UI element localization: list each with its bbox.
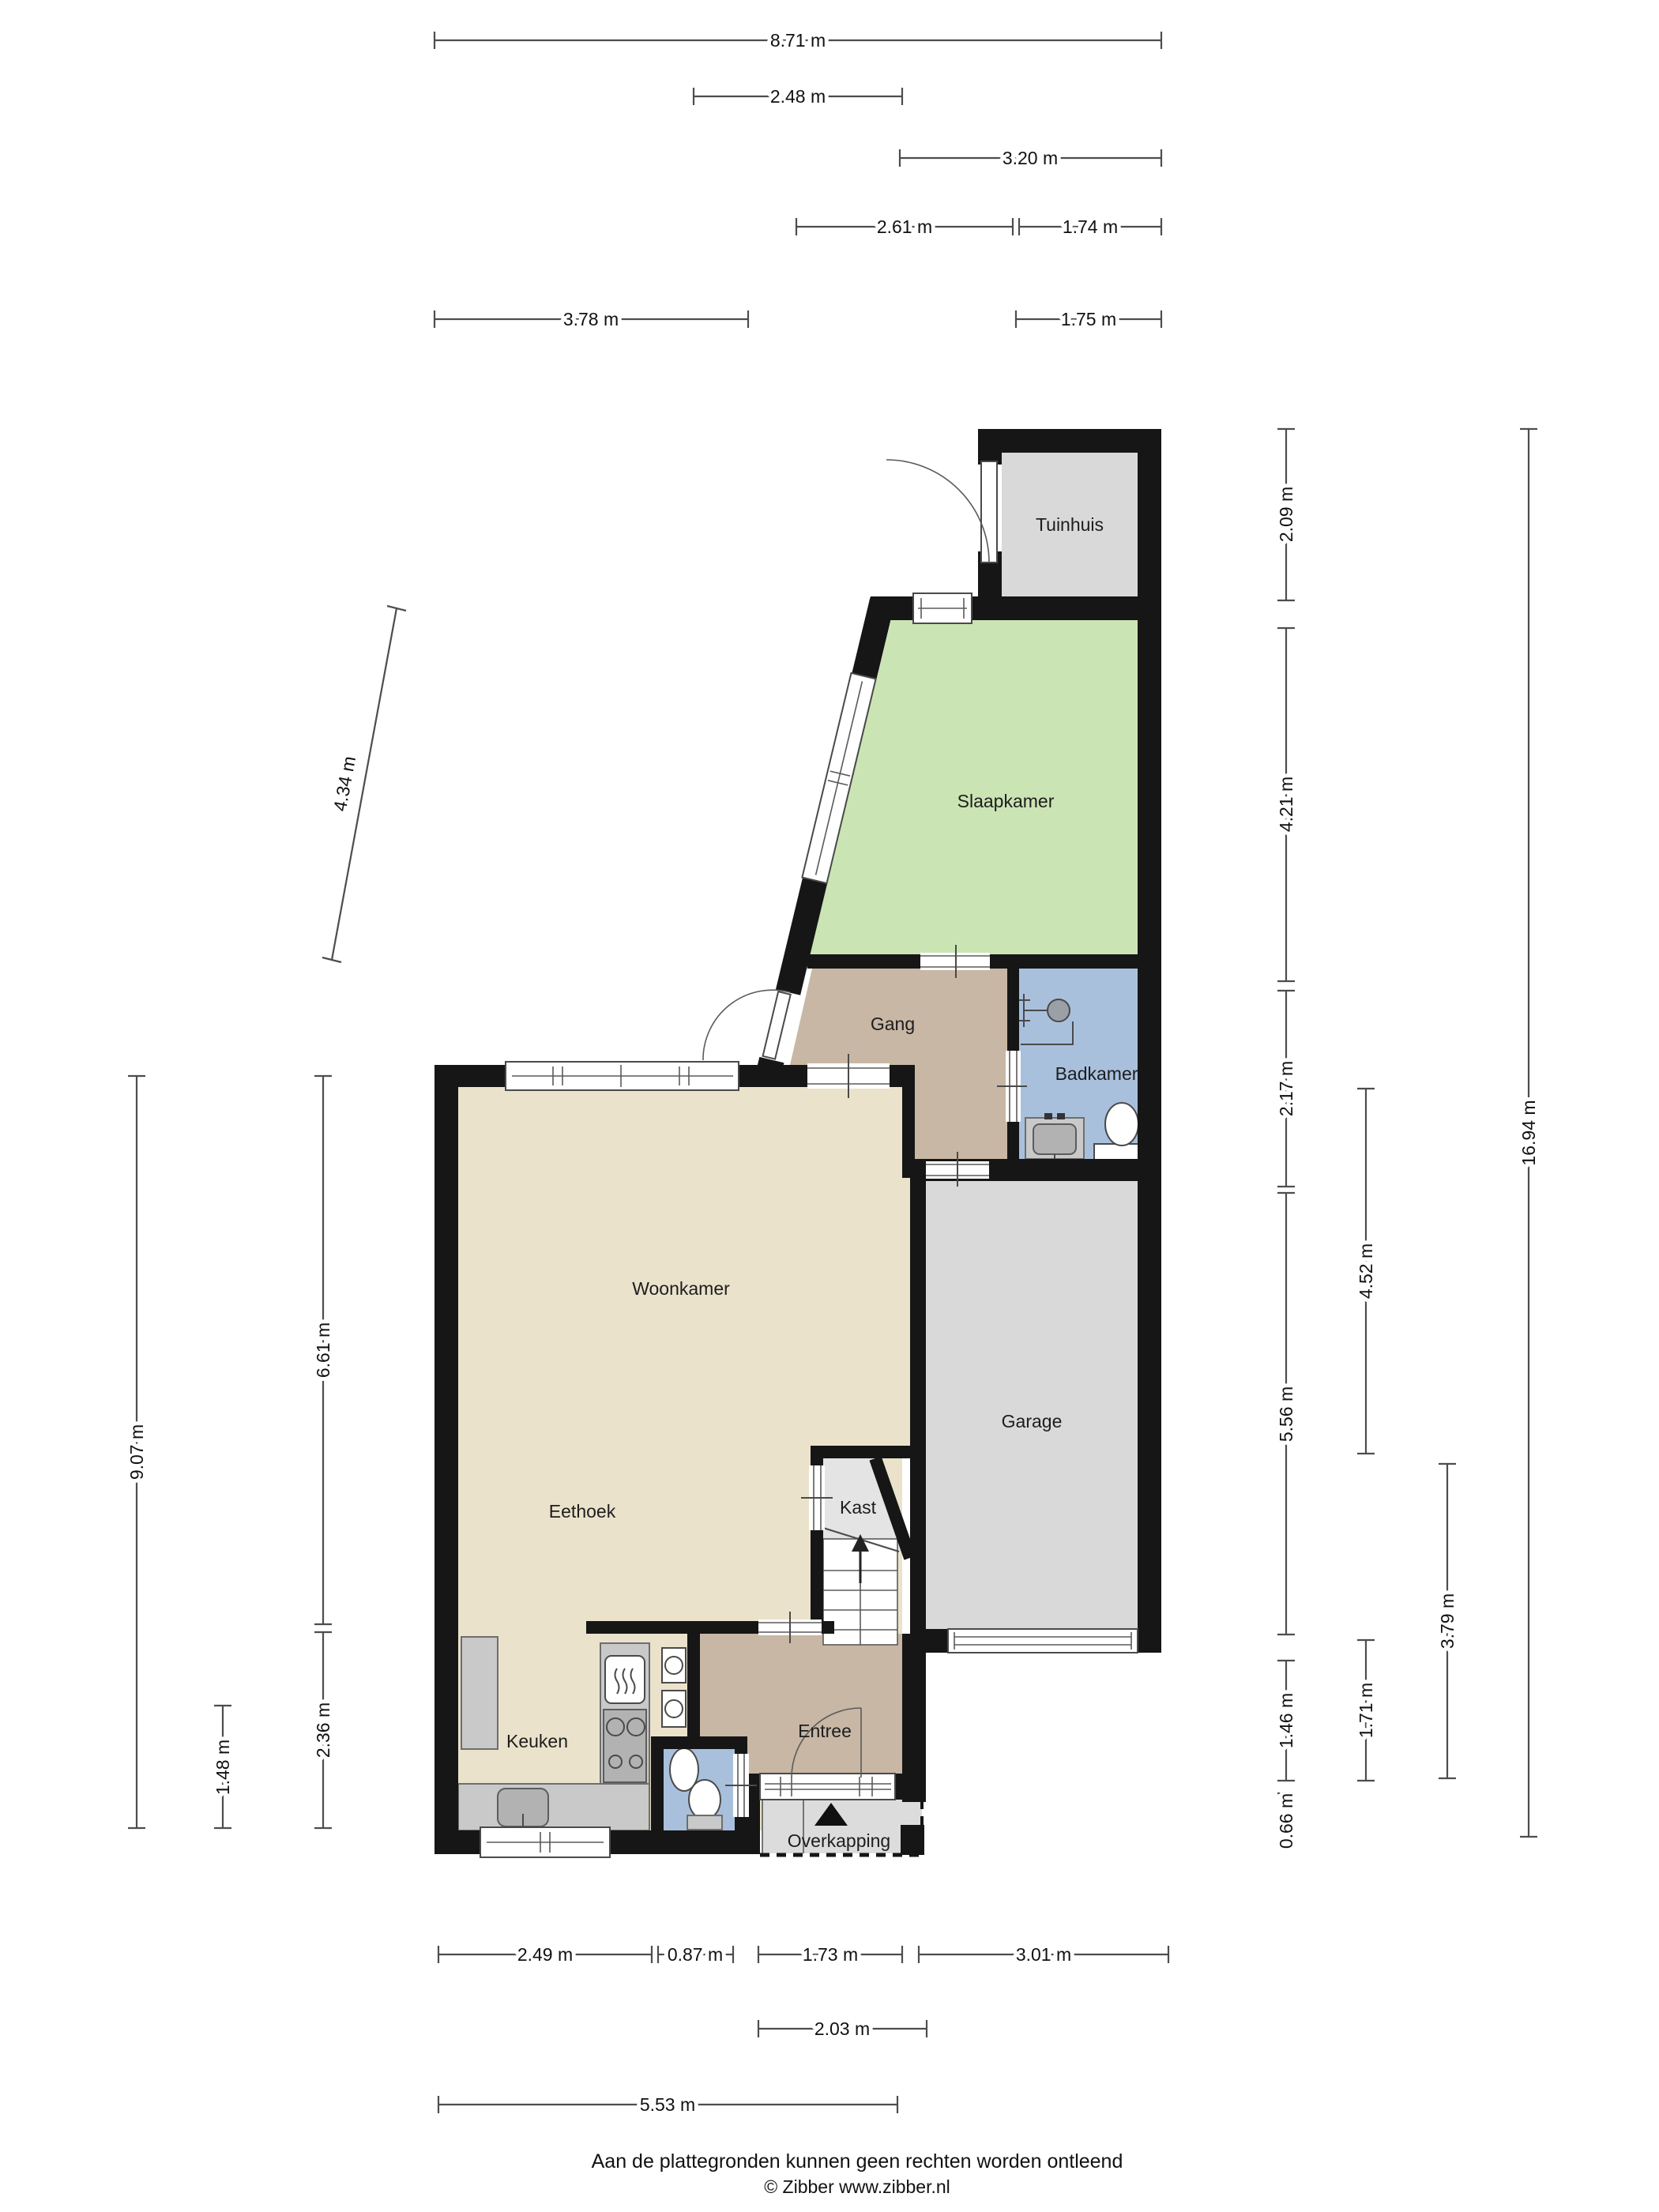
svg-text:2.48 m: 2.48 m [770,86,826,107]
svg-text:1.71 m: 1.71 m [1356,1683,1376,1738]
label-slaapkamer: Slaapkamer [957,791,1055,811]
dim-right-3: 5.56 m [1276,1193,1296,1635]
dim-bottom-1: 0.87 m [658,1944,733,1965]
dim-left-1: 6.61 m [313,1076,333,1624]
dim-bottom-4: 2.03 m [758,2018,927,2039]
dim-right-0: 2.09 m [1276,429,1296,600]
label-kast: Kast [840,1497,877,1518]
svg-text:1.75 m: 1.75 m [1061,309,1116,329]
window-slaapkamer-top [913,593,972,623]
label-woonkamer: Woonkamer [632,1278,730,1299]
svg-text:2.03 m: 2.03 m [814,2018,870,2039]
basin-tap-icon [1044,1113,1052,1119]
toilet-bowl-icon [1105,1103,1138,1145]
tuinhuis-door-leaf [981,461,997,562]
svg-text:5.56 m: 5.56 m [1276,1386,1296,1442]
floorplan-drawing: 8.71 m 2.48 m 3.20 m 2.61 m 1.74 m 3.78 … [0,0,1659,2212]
svg-text:1.73 m: 1.73 m [803,1944,858,1965]
dim-top-6: 1.75 m [1016,309,1161,329]
dim-top-0: 8.71 m [434,30,1161,51]
svg-text:2.36 m: 2.36 m [313,1702,333,1758]
dim-bottom-0: 2.49 m [438,1944,652,1965]
label-garage: Garage [1002,1411,1063,1431]
label-entree: Entree [798,1721,852,1741]
dim-bottom-3: 3.01 m [919,1944,1168,1965]
kitchen-cabinet [461,1637,498,1749]
dim-right-1: 4.21 m [1276,628,1296,981]
footer-disclaimer: Aan de plattegronden kunnen geen rechten… [592,2150,1123,2172]
svg-text:9.07 m: 9.07 m [126,1424,147,1480]
dim-left-3: 1.48 m [213,1706,233,1828]
dim-right-6: 4.52 m [1356,1089,1376,1454]
svg-text:3.79 m: 3.79 m [1437,1593,1458,1649]
kitchen-bottom-counter [458,1784,649,1830]
svg-text:2.09 m: 2.09 m [1276,487,1296,542]
svg-text:16.94 m: 16.94 m [1518,1100,1539,1165]
gang-exterior-door [703,989,803,1063]
dim-top-2: 3.20 m [900,148,1161,168]
svg-text:3.78 m: 3.78 m [563,309,619,329]
dim-left-4: 4.34 m [322,606,406,962]
svg-text:4.21 m: 4.21 m [1276,777,1296,832]
svg-text:2.49 m: 2.49 m [517,1944,573,1965]
shower-head-icon [1048,999,1070,1021]
svg-text:3.20 m: 3.20 m [1003,148,1058,168]
svg-text:1.74 m: 1.74 m [1063,216,1118,237]
svg-text:5.53 m: 5.53 m [640,2094,695,2115]
room-garage [926,1181,1138,1629]
label-eethoek: Eethoek [549,1501,616,1522]
wc-toilet-bowl-icon [689,1780,720,1819]
footer: Aan de plattegronden kunnen geen rechten… [592,2150,1123,2197]
dim-right-7: 1.71 m [1356,1640,1376,1781]
dim-top-3: 2.61 m [796,216,1013,237]
svg-text:0.87 m: 0.87 m [668,1944,723,1965]
svg-text:4.52 m: 4.52 m [1356,1243,1376,1299]
svg-text:2.17 m: 2.17 m [1276,1061,1296,1116]
dim-right-8: 3.79 m [1437,1464,1458,1778]
tuinhuis-door-arc [886,460,989,562]
floorplan-page: 8.71 m 2.48 m 3.20 m 2.61 m 1.74 m 3.78 … [0,0,1659,2212]
svg-text:2.61 m: 2.61 m [877,216,932,237]
label-keuken: Keuken [506,1731,568,1751]
label-tuinhuis: Tuinhuis [1036,514,1104,535]
dim-left-2: 2.36 m [313,1632,333,1828]
svg-text:1.48 m: 1.48 m [213,1740,233,1795]
staircase [823,1528,899,1645]
dim-bottom-2: 1.73 m [758,1944,902,1965]
dim-top-5: 3.78 m [434,309,748,329]
bath-basin-bowl-icon [1033,1124,1076,1154]
dim-right-9: 16.94 m [1518,429,1539,1837]
svg-text:0.66 m: 0.66 m [1276,1793,1296,1849]
svg-text:3.01 m: 3.01 m [1016,1944,1071,1965]
basin-tap-icon [1057,1113,1065,1119]
svg-text:1.46 m: 1.46 m [1276,1693,1296,1748]
svg-text:8.71 m: 8.71 m [770,30,826,51]
label-gang: Gang [871,1014,915,1034]
toilet-shelf-icon [1094,1144,1142,1160]
label-badkamer: Badkamer [1055,1063,1138,1084]
dim-right-2: 2.17 m [1276,991,1296,1187]
dim-right-5: 0.66 m [1276,1793,1296,1849]
svg-text:6.61 m: 6.61 m [313,1322,333,1378]
window-woonkamer [506,1062,739,1090]
dim-top-1: 2.48 m [694,86,902,107]
wc-toilet-tank-icon [687,1815,722,1830]
dim-top-4: 1.74 m [1019,216,1161,237]
dim-left-0: 9.07 m [126,1076,147,1828]
garage-door [948,1629,1138,1653]
dim-bottom-5: 5.53 m [438,2094,897,2115]
svg-text:4.34 m: 4.34 m [329,754,359,813]
dim-right-4: 1.46 m [1276,1661,1296,1781]
footer-copyright: © Zibber www.zibber.nl [764,2176,950,2197]
label-overkapping: Overkapping [788,1830,890,1851]
window-keuken [480,1827,610,1857]
